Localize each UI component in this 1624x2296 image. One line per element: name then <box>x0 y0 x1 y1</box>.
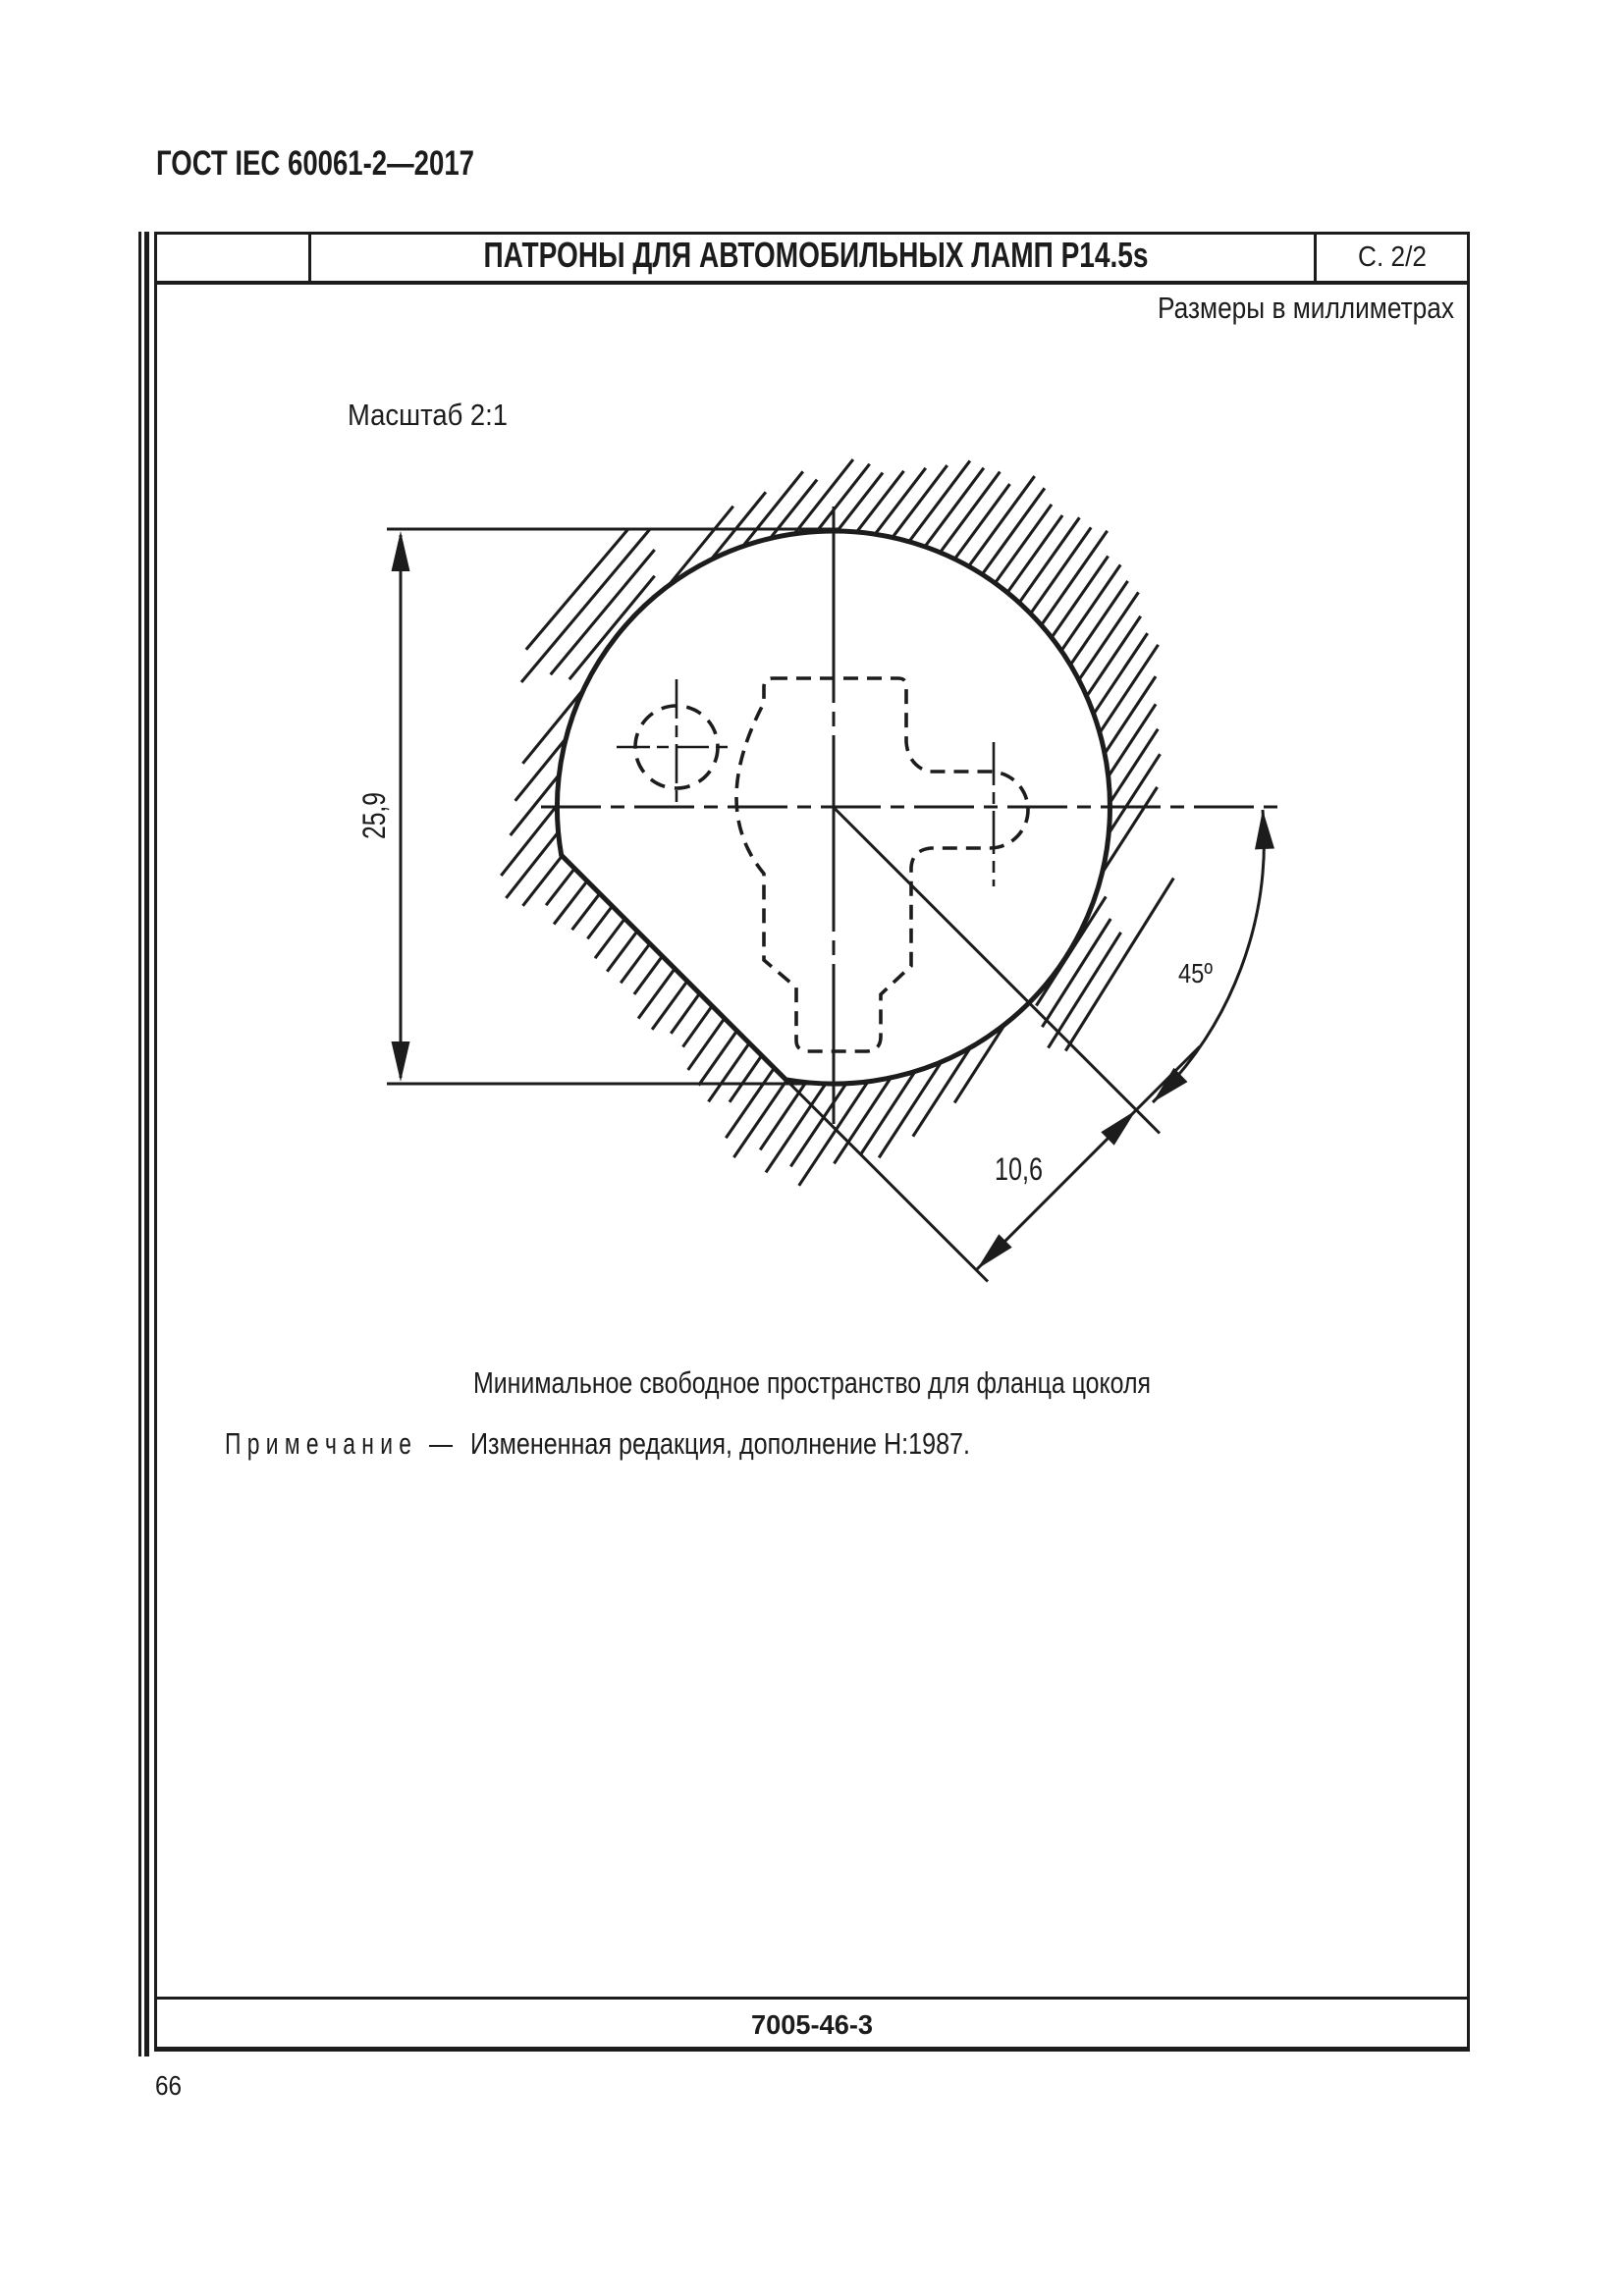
svg-text:7005-46-3: 7005-46-3 <box>751 2009 873 2040</box>
svg-text:Минимальное свободное простран: Минимальное свободное пространство для ф… <box>473 1365 1151 1400</box>
svg-text:45º: 45º <box>1178 958 1213 988</box>
svg-text:10,6: 10,6 <box>995 1151 1043 1187</box>
svg-text:25,9: 25,9 <box>356 792 392 839</box>
svg-text:ГОСТ IEC 60061-2—2017: ГОСТ IEC 60061-2—2017 <box>156 144 474 183</box>
svg-text:—: — <box>429 1426 453 1461</box>
svg-text:С. 2/2: С. 2/2 <box>1358 241 1427 273</box>
svg-text:ПАТРОНЫ ДЛЯ АВТОМОБИЛЬНЫХ ЛАМП: ПАТРОНЫ ДЛЯ АВТОМОБИЛЬНЫХ ЛАМП P14.5s <box>484 235 1149 275</box>
svg-text:П р и м е ч а н и е: П р и м е ч а н и е <box>225 1426 411 1461</box>
svg-text:66: 66 <box>155 2070 182 2101</box>
svg-text:Масштаб 2:1: Масштаб 2:1 <box>348 398 508 432</box>
svg-text:Размеры в миллиметрах: Размеры в миллиметрах <box>1158 291 1454 325</box>
svg-text:Измененная редакция, дополнени: Измененная редакция, дополнение H:1987. <box>470 1426 970 1461</box>
